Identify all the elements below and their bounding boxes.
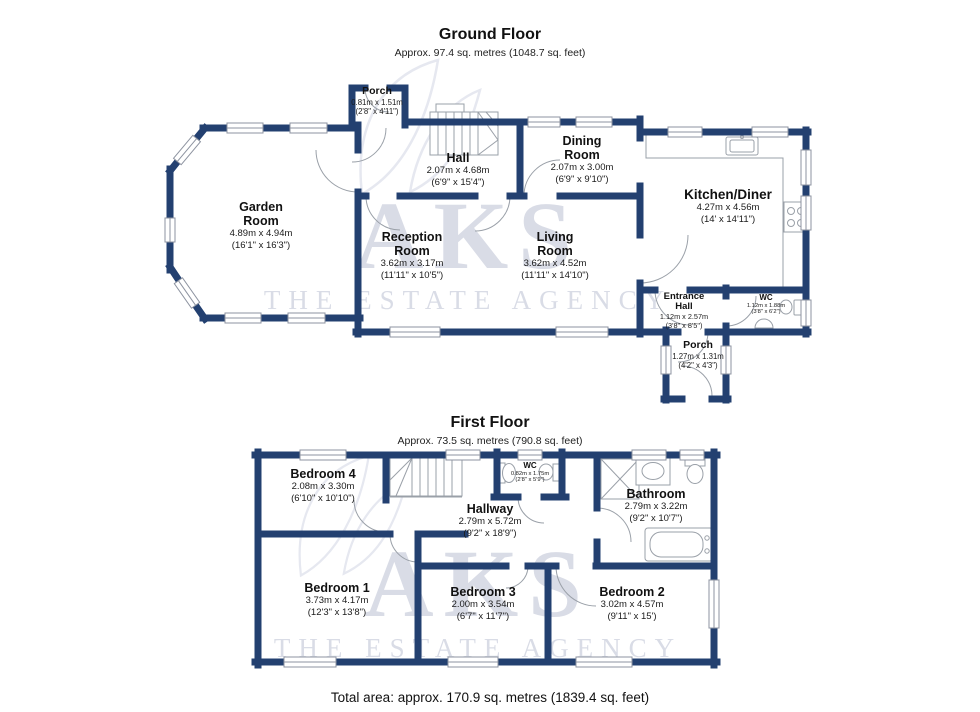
room-label-porch-rear: Porch 1.27m x 1.31m (4'2" x 4'3")	[672, 340, 724, 370]
room-label-kitchen-diner: Kitchen/Diner 4.27m x 4.56m (14' x 14'11…	[684, 187, 772, 225]
staircase-ground-icon	[430, 104, 498, 155]
room-label-wc-first: WC 0.82m x 1.75m (2'8" x 5'9")	[511, 462, 549, 484]
room-label-entrance-hall: Entrance Hall 1.12m x 2.57m (3'8" x 8'5"…	[660, 292, 708, 330]
ground-floor-title-text: Ground Floor	[0, 26, 980, 44]
room-label-reception-room: Reception Room 3.62m x 3.17m (11'11" x 1…	[381, 230, 444, 281]
room-label-bedroom4: Bedroom 4 2.08m x 3.30m (6'10" x 10'10")	[290, 467, 355, 504]
ground-floor-title: Ground Floor Approx. 97.4 sq. metres (10…	[0, 26, 980, 59]
room-label-bedroom3: Bedroom 3 2.00m x 3.54m (6'7" x 11'7")	[450, 585, 515, 622]
ground-floor-subtitle: Approx. 97.4 sq. metres (1048.7 sq. feet…	[0, 47, 980, 59]
first-floor-title: First Floor Approx. 73.5 sq. metres (790…	[0, 414, 980, 447]
room-label-hallway: Hallway 2.79m x 5.72m (9'2" x 18'9")	[459, 502, 522, 539]
floorplan-page: AKS THE ESTATE AGENCY AKS THE ESTATE AGE…	[0, 0, 980, 712]
room-label-porch-front: Porch 0.81m x 1.51m (2'8" x 4'11")	[351, 86, 403, 116]
room-label-bathroom: Bathroom 2.79m x 3.22m (9'2" x 10'7")	[625, 487, 688, 524]
room-label-bedroom1: Bedroom 1 3.73m x 4.17m (12'3" x 13'8")	[304, 581, 369, 618]
room-label-garden-room: Garden Room 4.89m x 4.94m (16'1" x 16'3"…	[230, 200, 293, 251]
first-floor-title-text: First Floor	[0, 414, 980, 432]
room-label-bedroom2: Bedroom 2 3.02m x 4.57m (9'11" x 15')	[599, 585, 664, 622]
staircase-first-icon	[390, 458, 462, 497]
first-floor-subtitle: Approx. 73.5 sq. metres (790.8 sq. feet)	[0, 435, 980, 447]
total-area-text: Total area: approx. 170.9 sq. metres (18…	[0, 690, 980, 705]
room-label-living-room: Living Room 3.62m x 4.52m (11'11" x 14'1…	[521, 230, 589, 281]
room-label-wc-ground: WC 1.12m x 1.88m (3'8" x 6'2")	[747, 294, 785, 316]
room-label-dining-room: Dining Room 2.07m x 3.00m (6'9" x 9'10")	[551, 134, 614, 185]
room-label-hall: Hall 2.07m x 4.68m (6'9" x 15'4")	[427, 151, 490, 188]
